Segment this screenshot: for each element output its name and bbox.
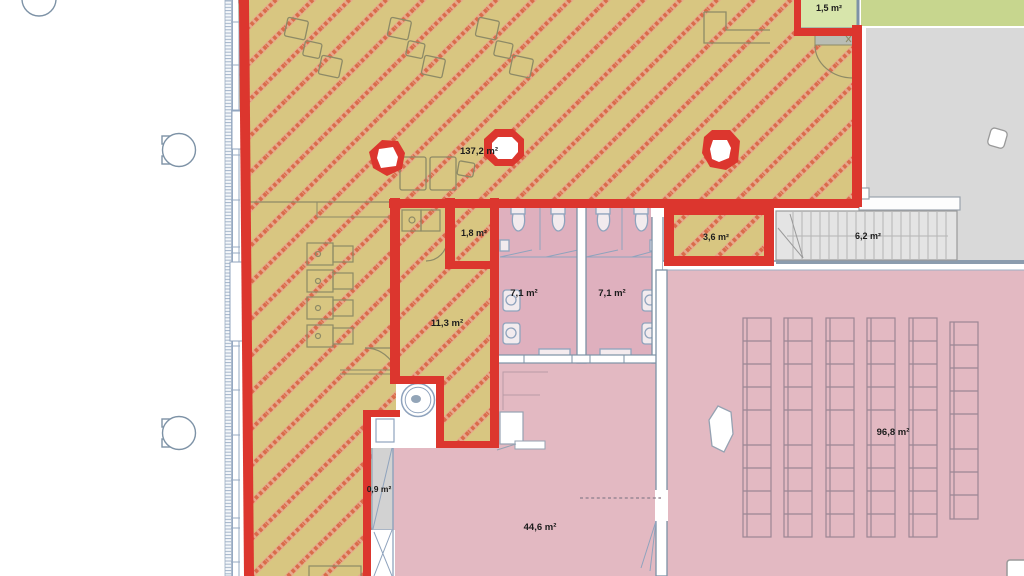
- svg-text:1,5 m²: 1,5 m²: [816, 3, 842, 13]
- svg-text:44,6 m²: 44,6 m²: [524, 522, 557, 533]
- svg-text:96,8 m²: 96,8 m²: [877, 427, 910, 438]
- svg-text:3,6 m²: 3,6 m²: [703, 232, 729, 242]
- svg-text:7,1 m²: 7,1 m²: [598, 288, 625, 299]
- svg-text:6,2 m²: 6,2 m²: [855, 231, 881, 241]
- svg-text:7,1 m²: 7,1 m²: [510, 288, 537, 299]
- svg-text:11,3 m²: 11,3 m²: [431, 318, 463, 329]
- svg-text:1,8 m²: 1,8 m²: [461, 228, 487, 238]
- svg-text:137,2 m²: 137,2 m²: [460, 146, 498, 157]
- svg-text:0,9 m²: 0,9 m²: [367, 484, 392, 494]
